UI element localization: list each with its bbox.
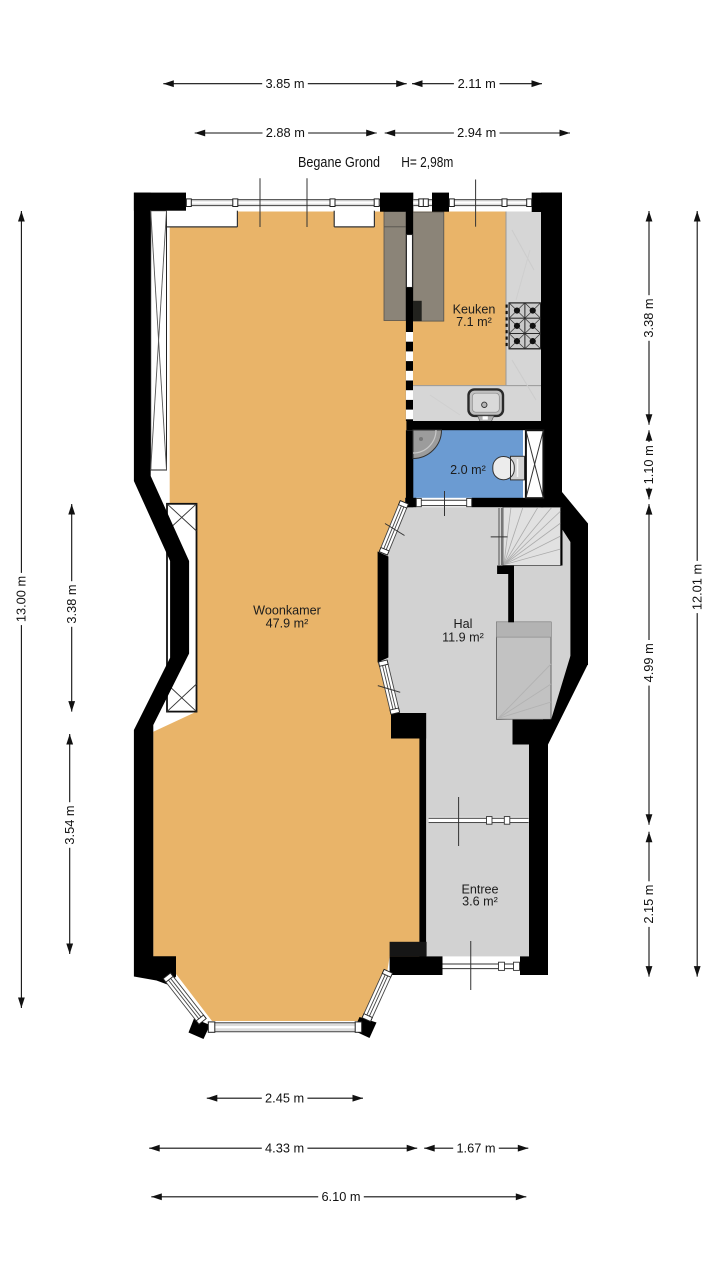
svg-text:7.1 m²: 7.1 m² xyxy=(456,315,492,329)
svg-text:Begane Grond: Begane Grond xyxy=(298,154,380,171)
svg-text:47.9 m²: 47.9 m² xyxy=(266,617,309,631)
svg-text:12.01 m: 12.01 m xyxy=(689,564,704,610)
svg-text:4.33 m: 4.33 m xyxy=(265,1140,304,1155)
svg-text:1.10 m: 1.10 m xyxy=(641,445,656,484)
svg-text:1.67 m: 1.67 m xyxy=(456,1140,495,1155)
svg-text:6.10 m: 6.10 m xyxy=(321,1189,360,1204)
svg-text:2.45 m: 2.45 m xyxy=(265,1090,304,1105)
svg-text:2.88 m: 2.88 m xyxy=(266,125,305,140)
svg-text:3.54 m: 3.54 m xyxy=(62,805,77,844)
svg-text:11.9 m²: 11.9 m² xyxy=(442,631,484,645)
svg-text:4.99 m: 4.99 m xyxy=(641,643,656,682)
svg-text:3.38 m: 3.38 m xyxy=(64,584,79,623)
svg-text:2.0 m²: 2.0 m² xyxy=(450,463,486,477)
svg-text:3.85 m: 3.85 m xyxy=(265,76,304,91)
svg-text:Hal: Hal xyxy=(454,617,473,631)
svg-text:3.6 m²: 3.6 m² xyxy=(462,895,498,909)
svg-text:2.11 m: 2.11 m xyxy=(458,76,496,91)
svg-text:H= 2,98m: H= 2,98m xyxy=(401,154,453,171)
svg-text:Woonkamer: Woonkamer xyxy=(253,603,321,617)
svg-text:13.00 m: 13.00 m xyxy=(14,576,29,622)
svg-text:3.38 m: 3.38 m xyxy=(641,298,656,337)
svg-text:2.94 m: 2.94 m xyxy=(457,125,496,140)
svg-text:2.15 m: 2.15 m xyxy=(641,885,656,924)
